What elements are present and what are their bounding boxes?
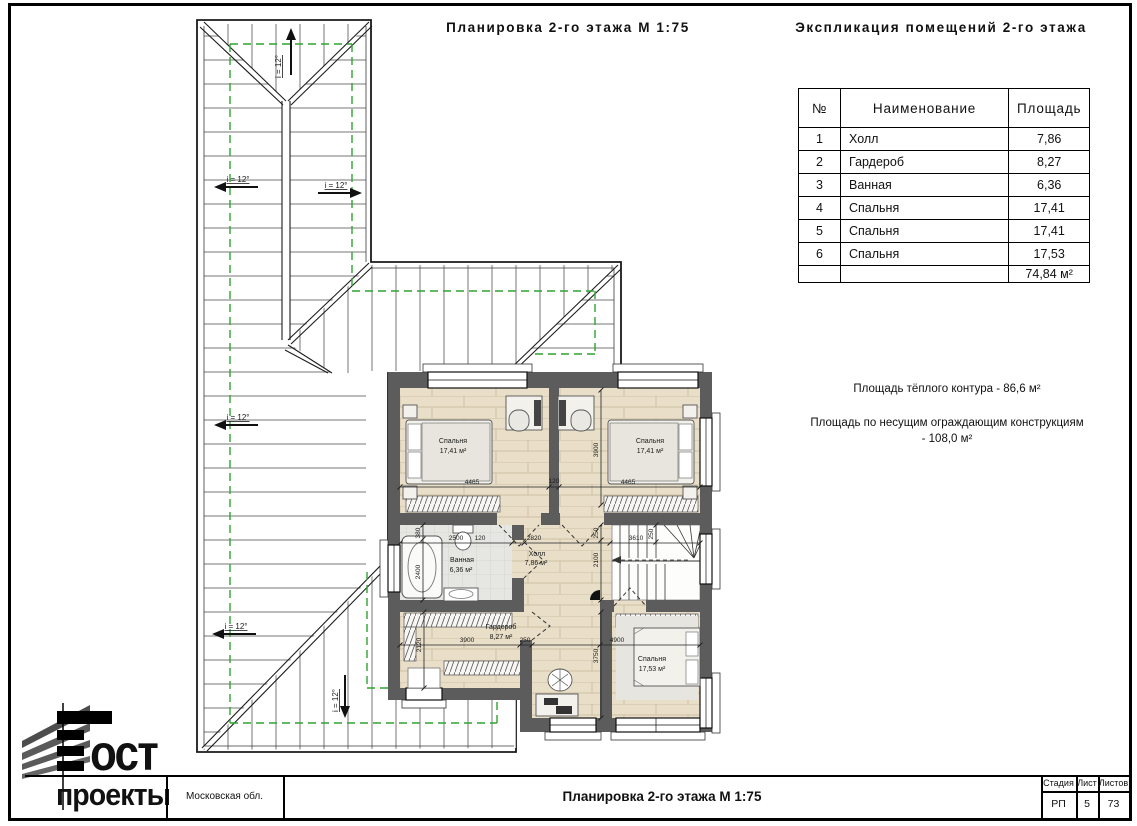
slope-label: i = 12° (225, 622, 248, 631)
svg-text:3750: 3750 (593, 648, 600, 663)
svg-text:250: 250 (520, 637, 531, 644)
table-row: 1 Холл 7,86 (799, 128, 1090, 151)
total-area: 74,84 м² (1009, 266, 1090, 283)
svg-text:4465: 4465 (465, 479, 480, 486)
note-bearing-structures: Площадь по несущим ограждающим конструкц… (807, 416, 1087, 447)
second-floor-plan: 4465 120 4465 3900 2500 120 2820 3610 38… (380, 364, 720, 740)
room-label-bedroom5: Спальня (636, 438, 664, 445)
slope-label: i = 12° (325, 181, 348, 190)
col-number: № (799, 89, 841, 128)
explication-title: Экспликация помещений 2-го этажа (795, 20, 1087, 35)
room-label-hall: Холл (529, 551, 546, 558)
logo-text-top: ост (90, 728, 157, 778)
table-row: 5 Спальня 17,41 (799, 220, 1090, 243)
col-name: Наименование (841, 89, 1009, 128)
drawing-sheet: i = 12° i = 12° i = 12° i = 12° i = 12° … (0, 0, 1137, 826)
svg-text:4465: 4465 (621, 479, 636, 486)
svg-text:2820: 2820 (527, 535, 542, 542)
explication-table: № Наименование Площадь 1 Холл 7,86 2 Гар… (798, 88, 1090, 283)
desk-bedroom-5 (558, 396, 594, 431)
svg-text:8,27 м²: 8,27 м² (490, 634, 513, 641)
room-label-bedroom6: Спальня (638, 656, 666, 663)
svg-text:6,36 м²: 6,36 м² (450, 567, 473, 574)
svg-text:2120: 2120 (416, 637, 423, 652)
sheets-value: 73 (1098, 791, 1129, 818)
svg-text:120: 120 (475, 535, 486, 542)
svg-text:3900: 3900 (460, 637, 475, 644)
room-label-wardrobe: Гардероб (486, 623, 517, 631)
note-warm-contour: Площадь тёплого контура - 86,6 м² (807, 382, 1087, 398)
room-label-bathroom: Ванная (450, 557, 474, 564)
svg-text:250: 250 (593, 527, 600, 538)
col-area: Площадь (1009, 89, 1090, 128)
stage-value: РП (1041, 791, 1076, 818)
region-cell: Московская обл. (166, 776, 283, 818)
slope-label: i = 12° (274, 55, 283, 78)
sheet-label: Лист (1076, 776, 1098, 791)
svg-text:3610: 3610 (629, 535, 644, 542)
desk-bedroom-4 (506, 396, 542, 431)
svg-text:3900: 3900 (593, 442, 600, 457)
svg-text:17,41 м²: 17,41 м² (637, 448, 664, 455)
room-label-bedroom4: Спальня (439, 438, 467, 445)
table-row: 6 Спальня 17,53 (799, 243, 1090, 266)
plan-title: Планировка 2-го этажа М 1:75 (446, 20, 690, 35)
svg-text:17,53 м²: 17,53 м² (639, 666, 666, 673)
slope-label: i = 12° (227, 413, 250, 422)
svg-text:7,86 м²: 7,86 м² (525, 560, 548, 567)
table-header-row: № Наименование Площадь (799, 89, 1090, 128)
doc-title-cell: Планировка 2-го этажа М 1:75 (283, 776, 1041, 818)
slope-label: i = 12° (331, 689, 340, 712)
sheets-label: Листов (1098, 776, 1129, 791)
svg-text:120: 120 (549, 478, 560, 485)
table-row: 3 Ванная 6,36 (799, 174, 1090, 197)
washbasin (444, 588, 478, 601)
svg-text:250: 250 (648, 528, 655, 539)
svg-text:2100: 2100 (593, 552, 600, 567)
sheet-value: 5 (1076, 791, 1098, 818)
svg-text:17,41 м²: 17,41 м² (440, 448, 467, 455)
stage-label: Стадия (1041, 776, 1076, 791)
logo-text-bottom: проекты (56, 779, 170, 810)
bathtub (402, 536, 442, 598)
table-row: 2 Гардероб 8,27 (799, 151, 1090, 174)
table-total-row: 74,84 м² (799, 266, 1090, 283)
svg-text:4900: 4900 (610, 637, 625, 644)
svg-text:380: 380 (415, 527, 422, 538)
svg-text:2400: 2400 (415, 564, 422, 579)
table-row: 4 Спальня 17,41 (799, 197, 1090, 220)
svg-text:2500: 2500 (449, 535, 464, 542)
slope-label: i = 12° (227, 175, 250, 184)
